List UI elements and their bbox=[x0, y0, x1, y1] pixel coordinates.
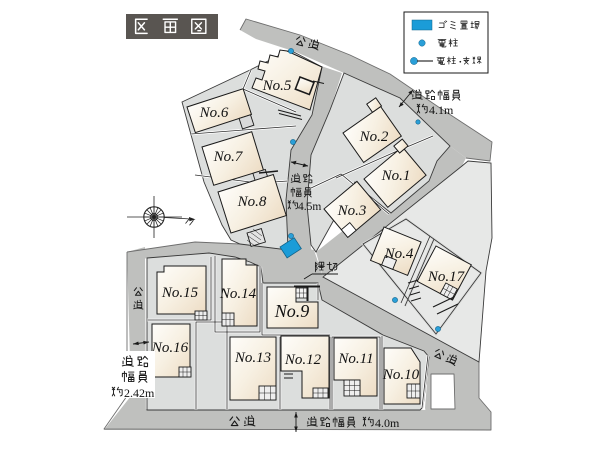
svg-text:No.2: No.2 bbox=[359, 129, 389, 145]
svg-text:No.4: No.4 bbox=[384, 246, 414, 262]
svg-text:No.16: No.16 bbox=[151, 340, 189, 356]
svg-text:4.0m: 4.0m bbox=[375, 416, 400, 430]
svg-text:2.42m: 2.42m bbox=[124, 386, 155, 400]
svg-text:No.12: No.12 bbox=[284, 352, 322, 368]
svg-text:No.1: No.1 bbox=[381, 168, 411, 184]
svg-text:No.7: No.7 bbox=[213, 149, 244, 165]
svg-text:No.10: No.10 bbox=[382, 367, 420, 383]
svg-text:No.15: No.15 bbox=[161, 285, 199, 301]
svg-text:No.14: No.14 bbox=[219, 286, 257, 302]
svg-text:No.5: No.5 bbox=[262, 78, 292, 94]
svg-text:No.17: No.17 bbox=[427, 269, 466, 285]
svg-text:No.6: No.6 bbox=[199, 105, 229, 121]
svg-text:No.13: No.13 bbox=[234, 350, 271, 366]
svg-text:4.5m: 4.5m bbox=[298, 201, 321, 213]
svg-text:No.3: No.3 bbox=[337, 203, 367, 219]
svg-text:4.1m: 4.1m bbox=[429, 103, 454, 117]
svg-text:No.9: No.9 bbox=[274, 301, 310, 321]
svg-text:No.8: No.8 bbox=[237, 194, 267, 210]
svg-text:No.11: No.11 bbox=[337, 351, 373, 367]
